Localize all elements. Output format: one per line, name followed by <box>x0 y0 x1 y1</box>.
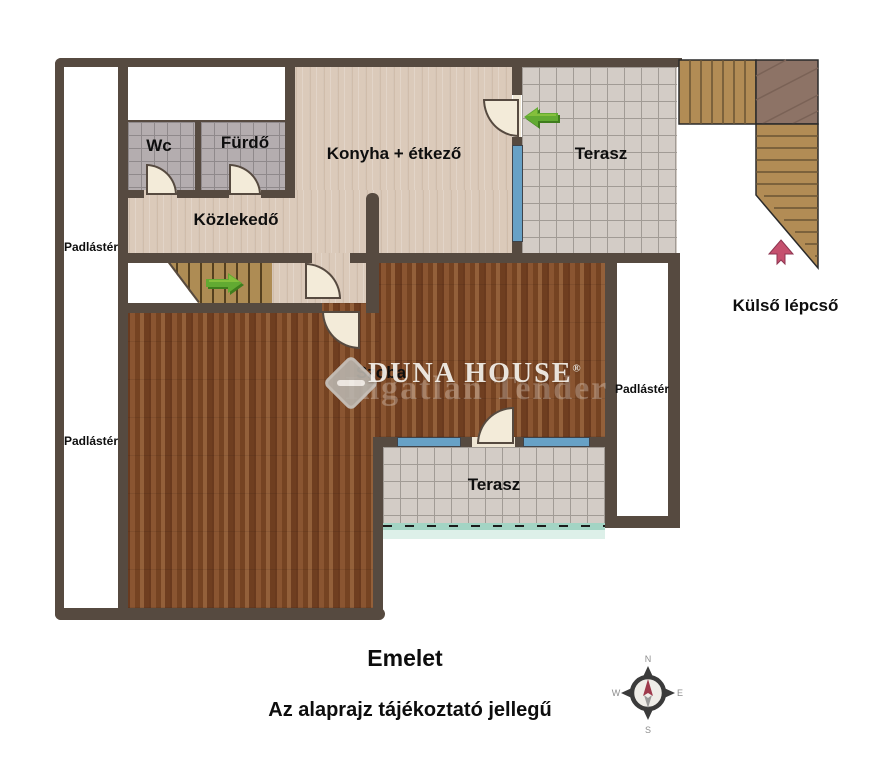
compass-e-label: E <box>677 688 683 698</box>
direction-arrow-left-icon <box>524 106 562 130</box>
window-konyha-terasz <box>512 145 523 242</box>
direction-arrow-right-icon <box>204 272 246 296</box>
terasz-also-edge-fade <box>383 530 605 539</box>
watermark-registered-mark: ® <box>572 363 582 375</box>
wall-under-stairs <box>118 303 322 313</box>
attic-right-label: Padlástér <box>609 383 675 396</box>
external-stairs <box>676 56 826 274</box>
wall-bath-bottom-1 <box>128 190 144 198</box>
compass-w-label: W <box>612 688 621 698</box>
floor-plan: Wc Fürdő Közlekedő Konyha + étkező Teras… <box>0 0 879 768</box>
kulso-lepcso-label: Külső lépcső <box>708 297 863 316</box>
wall-left-outer <box>55 58 64 620</box>
wall-mid-right <box>350 253 680 263</box>
terasz-also-railing-dashes <box>383 525 605 527</box>
wall-terasz-also-3 <box>515 437 523 447</box>
wall-furdo-konyha <box>285 58 295 198</box>
room-konyha-floor <box>295 67 512 198</box>
terasz-also-label: Terasz <box>434 476 554 495</box>
room-wc-label: Wc <box>139 137 179 156</box>
disclaimer-text: Az alaprajz tájékoztató jellegű <box>230 699 590 722</box>
wall-terasz-also-4 <box>588 437 605 447</box>
wall-attic-right-bottom <box>605 516 680 528</box>
window-szoba-terasz-left <box>397 437 461 447</box>
wall-szoba-right <box>373 437 383 613</box>
room-kozlekedo-label: Közlekedő <box>176 211 296 230</box>
wall-bath-bottom-2 <box>177 190 229 198</box>
wall-bath-bottom-3 <box>261 190 285 198</box>
void-space <box>128 67 285 120</box>
wall-wc-furdo <box>195 122 201 190</box>
exterior-stairs-arrow-icon <box>769 240 793 264</box>
terasz-felso-label: Terasz <box>541 145 661 164</box>
wall-mid-left <box>118 253 312 263</box>
room-furdo-label: Fürdő <box>205 134 285 153</box>
room-szoba-floor-right <box>379 263 605 437</box>
wall-bottom <box>55 608 385 620</box>
compass-rose-icon: N S W E <box>611 650 685 736</box>
attic-left-lower-label: Padlástér <box>60 435 122 448</box>
attic-left-upper-label: Padlástér <box>60 241 122 254</box>
wall-top <box>55 58 682 67</box>
wall-konyha-terasz-stub <box>512 67 522 95</box>
wall-terasz-also-1 <box>383 437 397 447</box>
compass-s-label: S <box>645 725 651 735</box>
watermark-brand: DUNA HOUSE <box>368 358 572 389</box>
compass-n-label: N <box>645 654 652 664</box>
wall-left-inner <box>118 58 128 620</box>
window-szoba-terasz-right <box>523 437 590 447</box>
void-divider-line <box>128 120 285 122</box>
room-szoba-floor-left <box>128 303 379 608</box>
watermark-brand-text: DUNA HOUSE® <box>368 358 583 390</box>
room-konyha-label: Konyha + étkező <box>294 145 494 164</box>
page-title: Emelet <box>320 645 490 672</box>
wall-divider-stub <box>366 193 379 313</box>
